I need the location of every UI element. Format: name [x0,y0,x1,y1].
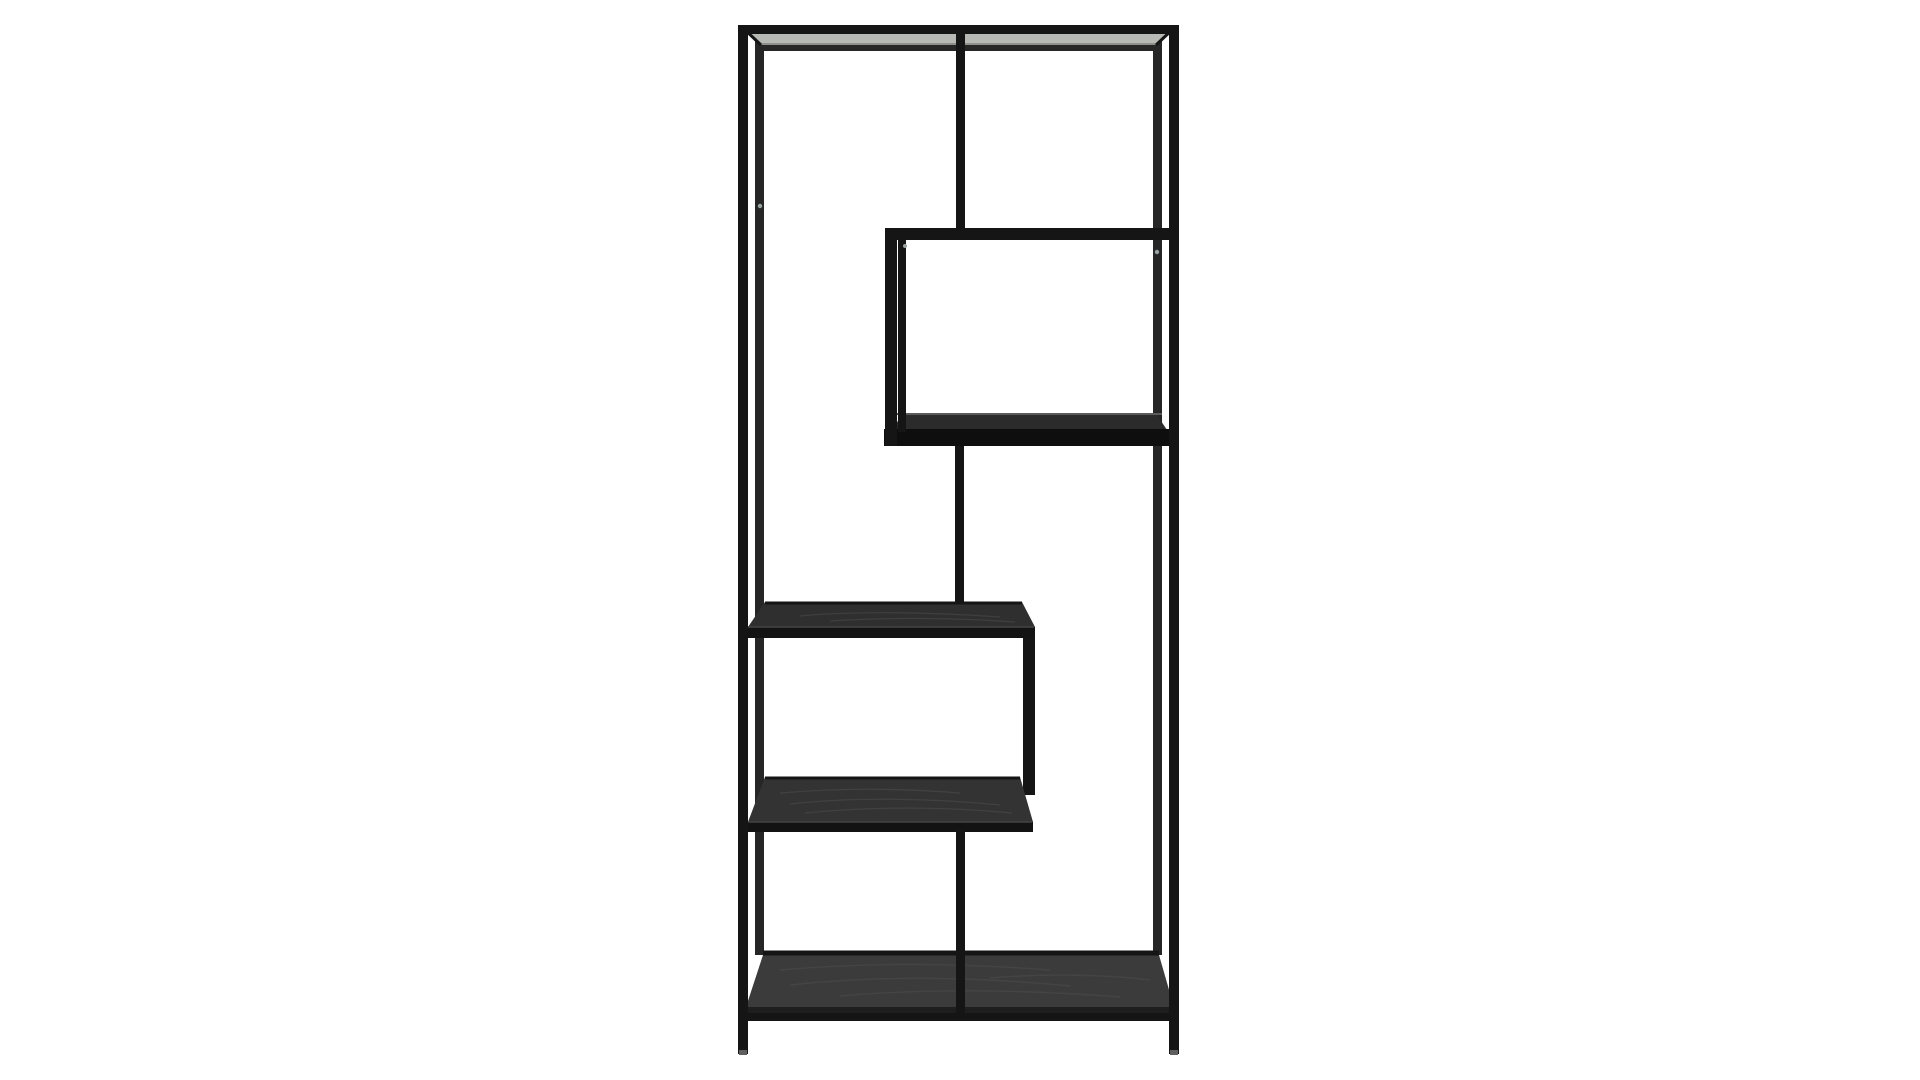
screw-dot-icon [758,204,762,208]
lower-box-right-post [1023,630,1035,795]
top-front-rail [738,25,1179,34]
screw-dot-icon [1155,250,1159,254]
etagere-photo: Black metal asymmetric etagere bookcase … [0,0,1920,1080]
lower-shelf [740,777,1033,832]
right-foot-tip [1170,1050,1178,1055]
middle-shelf [740,602,1035,638]
back-right-post [1153,40,1162,955]
center-post-upper [956,30,965,232]
upper-box-shelf [884,414,1179,446]
upper-box-shelf-surface [893,415,1167,430]
upper-box-left-back-bar [898,236,906,432]
left-front-post [738,25,748,1054]
upper-box-left-front-bar [885,228,897,446]
center-post-lower [956,830,965,1020]
right-front-post [1169,25,1179,1054]
screw-dot-icon [903,244,907,248]
center-post-middle [955,440,964,603]
upper-box-shelf-front-face [884,429,1179,446]
upper-box-top-rail [885,228,1179,240]
product-photo: Black metal asymmetric etagere bookcase … [0,0,1920,1080]
middle-shelf-front-face [740,627,1035,638]
left-foot-tip [739,1050,747,1055]
middle-shelf-surface [748,602,1035,627]
lower-shelf-front-face [740,822,1033,832]
